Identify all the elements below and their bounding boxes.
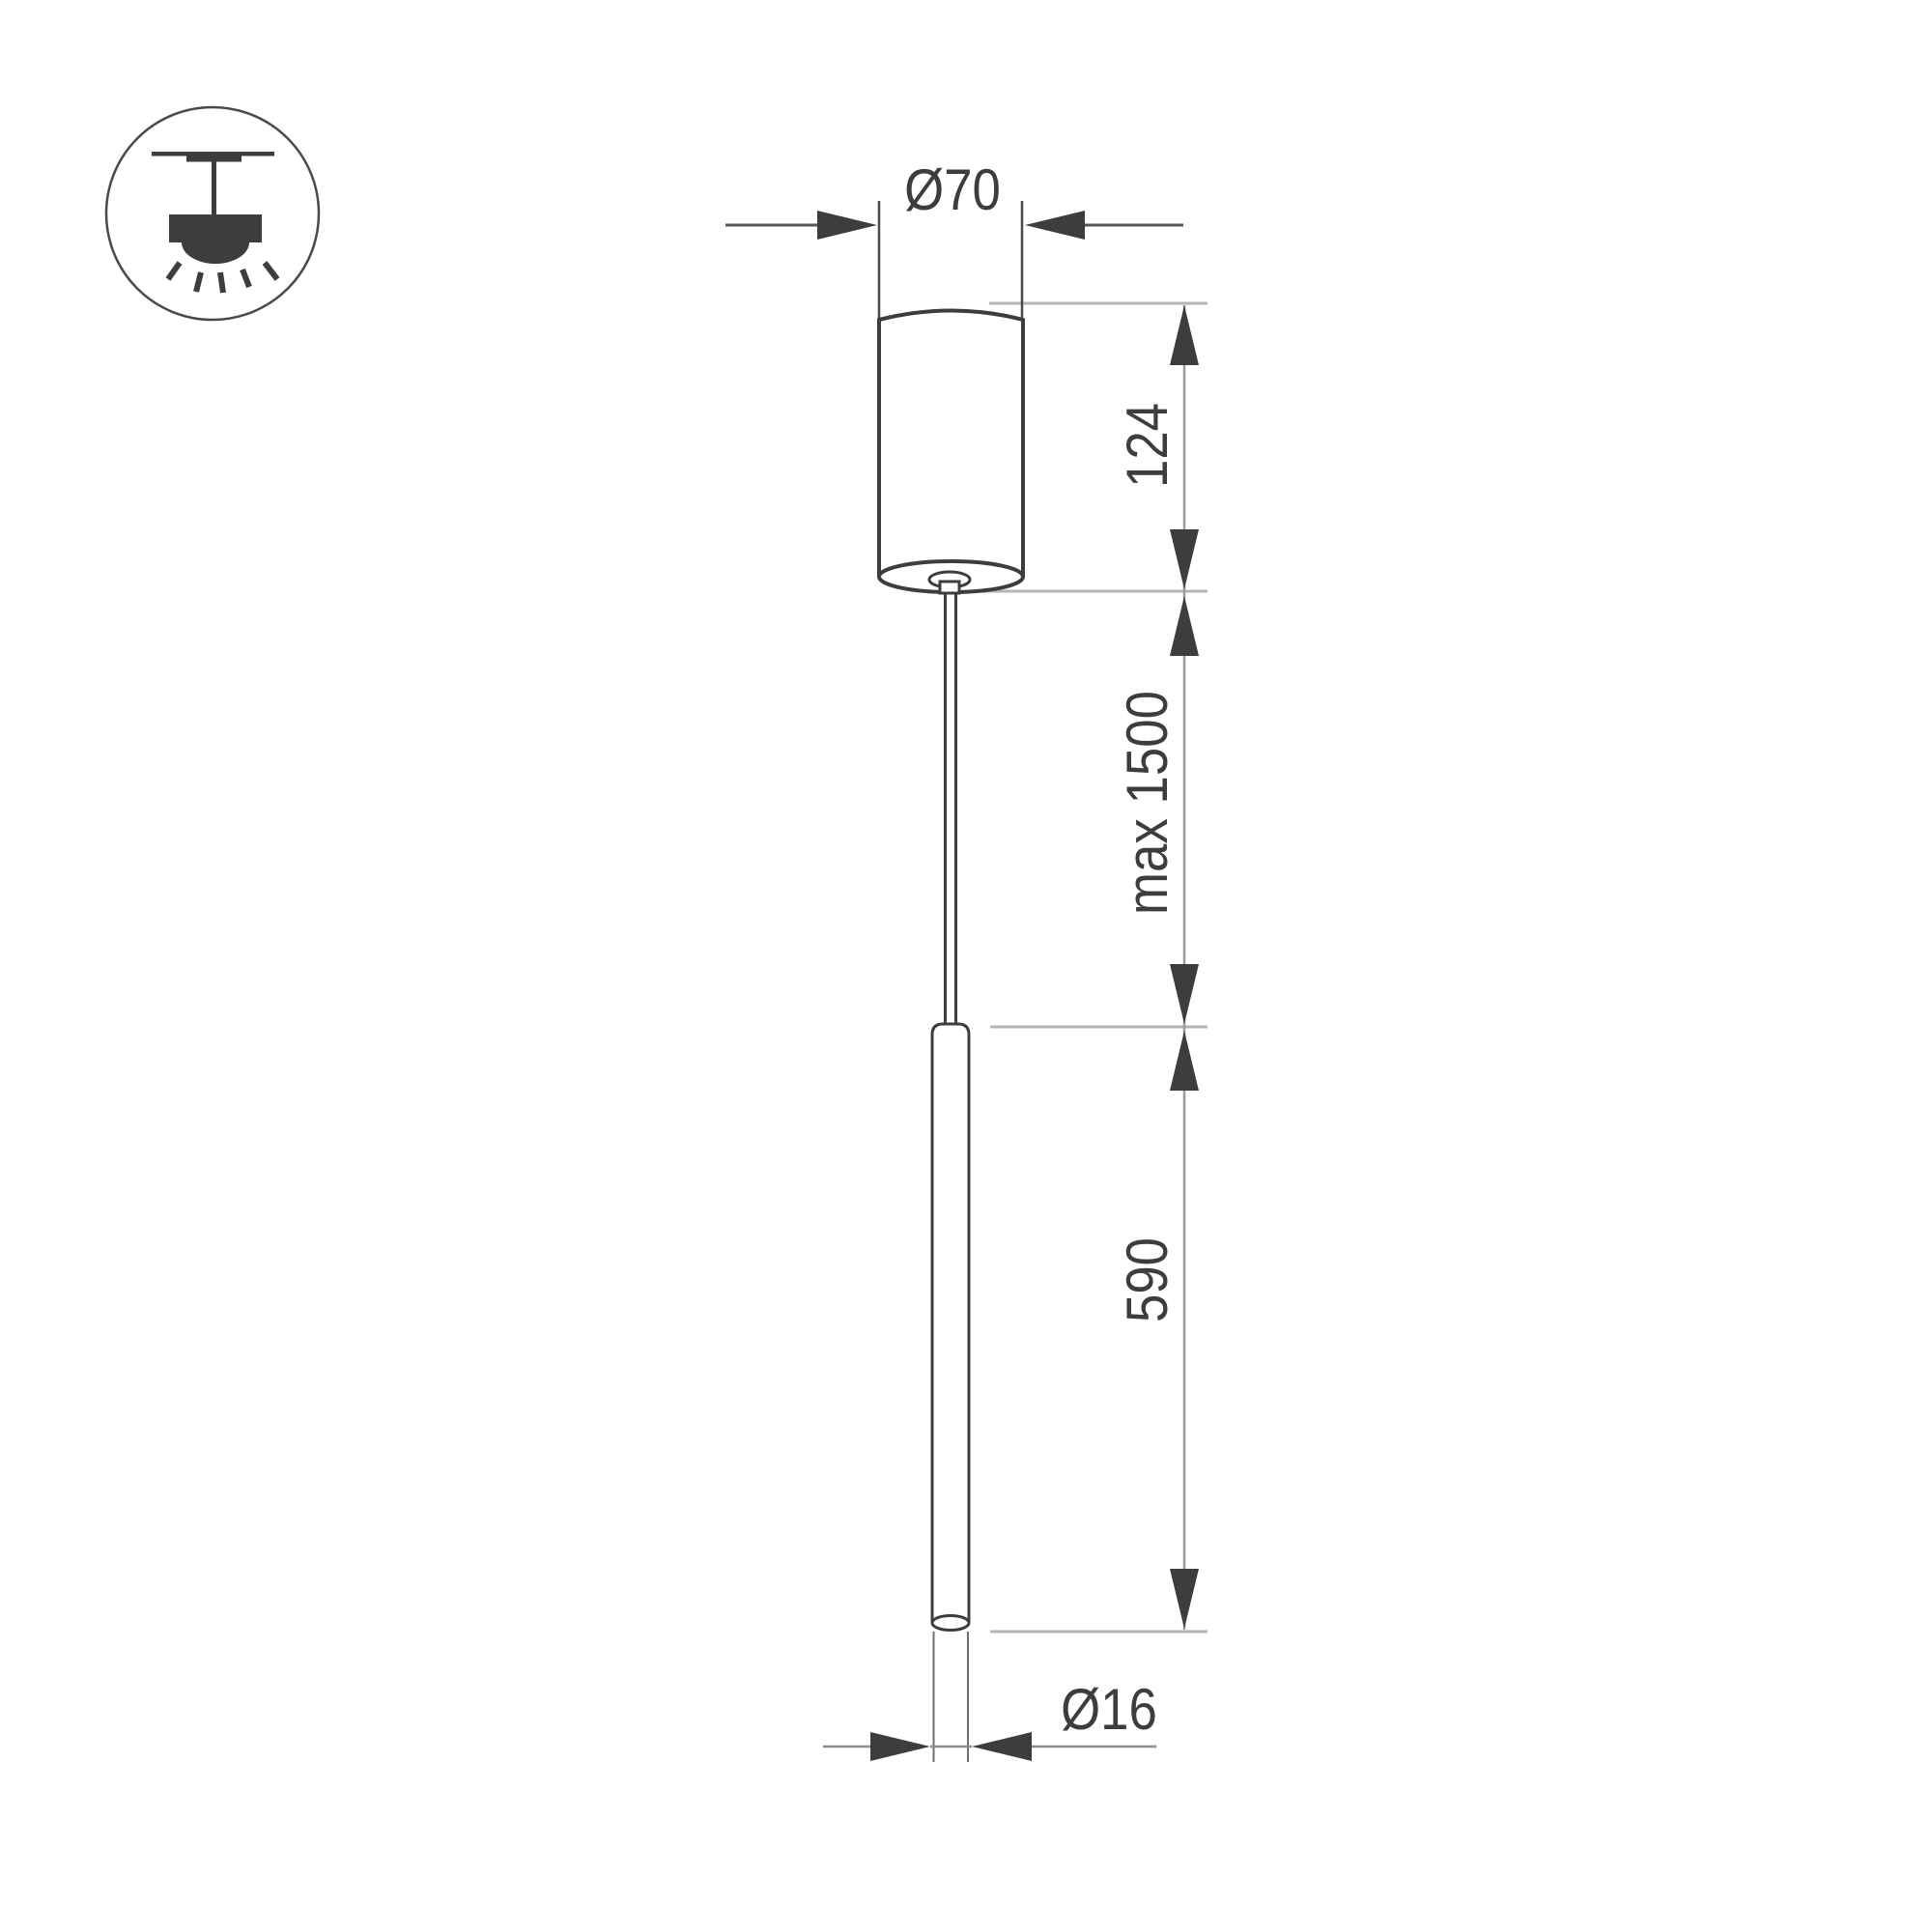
arrow-right-icon — [1025, 211, 1085, 240]
arrow-left-icon — [972, 1732, 1032, 1761]
ceiling-pendant-mount-icon — [106, 107, 319, 320]
icon-ceiling-line — [152, 152, 274, 156]
arrow-down-icon — [1170, 529, 1199, 589]
label-lamp-diameter: Ø16 — [1061, 1681, 1157, 1739]
canopy-outline — [879, 311, 1023, 578]
lamp-tube — [932, 1024, 969, 1631]
icon-stem — [212, 161, 216, 215]
grommet-neck — [940, 582, 959, 593]
arrow-left-icon — [817, 211, 877, 240]
label-suspension-length: max 1500 — [1119, 691, 1177, 915]
arrow-down-icon — [1170, 1569, 1199, 1629]
tube-bottom-ellipse — [932, 1616, 969, 1631]
tube-outline — [932, 1024, 969, 1623]
arrow-up-icon — [1170, 596, 1199, 656]
dimension-drawing-canvas: Ø70 124 max 1500 590 Ø16 — [0, 0, 1932, 1932]
label-canopy-diameter: Ø70 — [904, 161, 1001, 219]
canopy — [879, 311, 1023, 594]
arrow-up-icon — [1170, 1031, 1199, 1091]
arrow-up-icon — [1170, 305, 1199, 365]
suspension-wire — [946, 593, 956, 1024]
icon-lamp-body — [169, 214, 262, 242]
arrow-down-icon — [1170, 964, 1199, 1024]
label-lamp-length: 590 — [1119, 1237, 1177, 1322]
arrow-right-icon — [870, 1732, 930, 1761]
label-canopy-height: 124 — [1119, 403, 1177, 488]
pendant-lamp-drawing — [0, 0, 1932, 1932]
icon-mount-plate — [186, 156, 241, 162]
